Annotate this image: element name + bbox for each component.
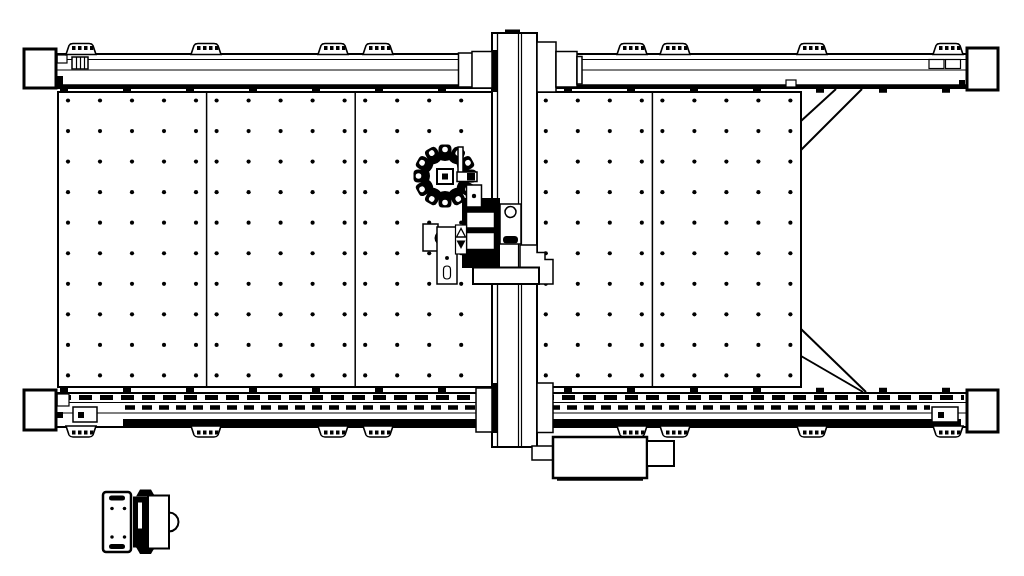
cnc-machine-plan-view (0, 0, 1024, 576)
cad-drawing-canvas (0, 0, 1024, 576)
right-frame-braces (801, 89, 866, 392)
pendant-unit (103, 490, 179, 555)
